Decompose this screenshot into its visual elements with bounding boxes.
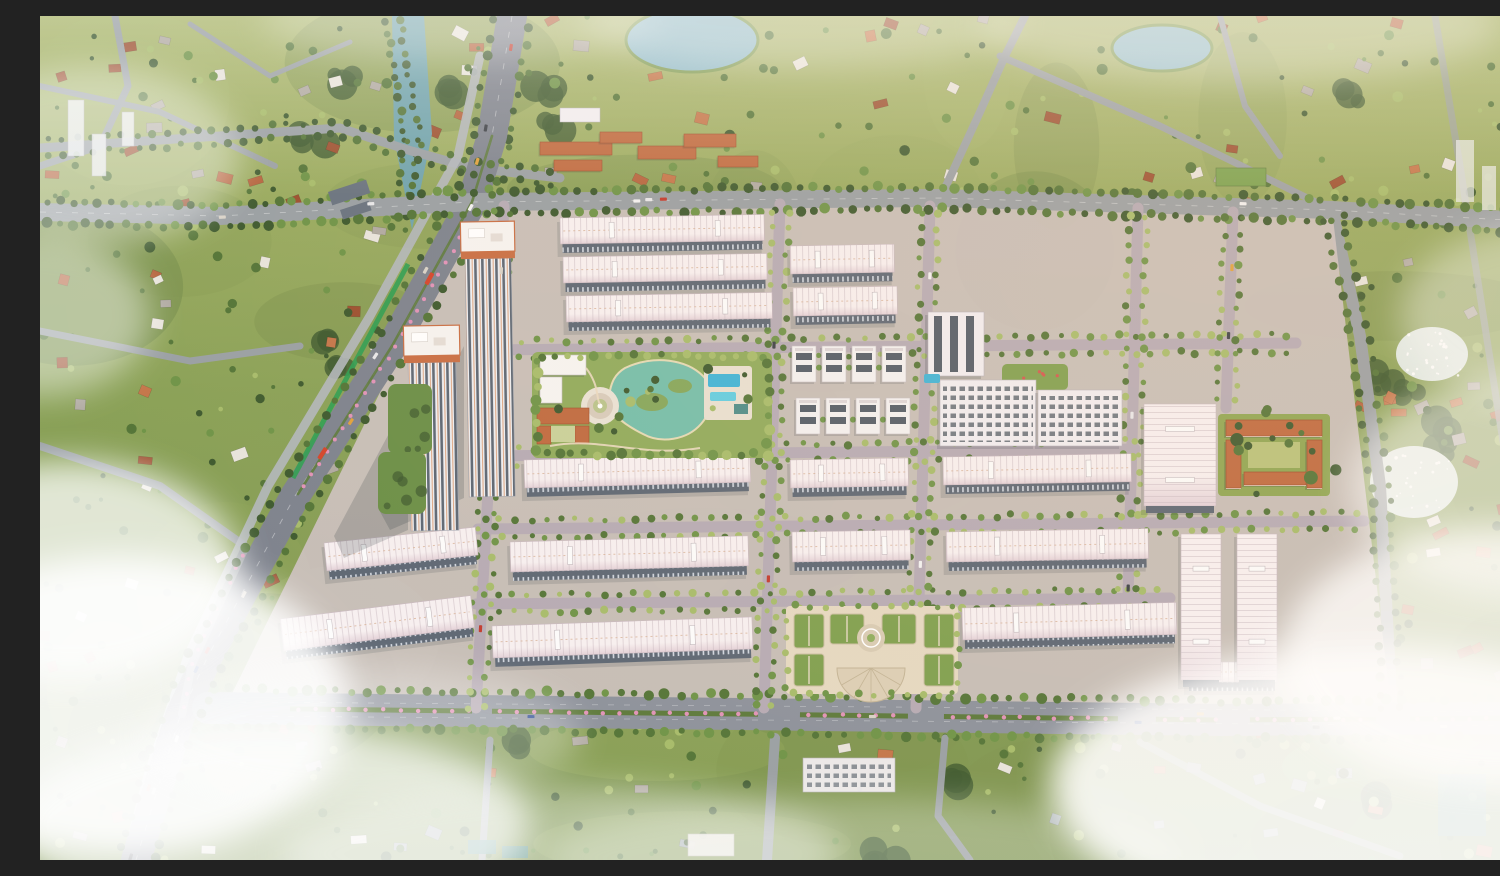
scene-svg — [40, 16, 1500, 860]
aerial-masterplan-render — [40, 16, 1500, 860]
atmosphere — [40, 16, 1500, 860]
